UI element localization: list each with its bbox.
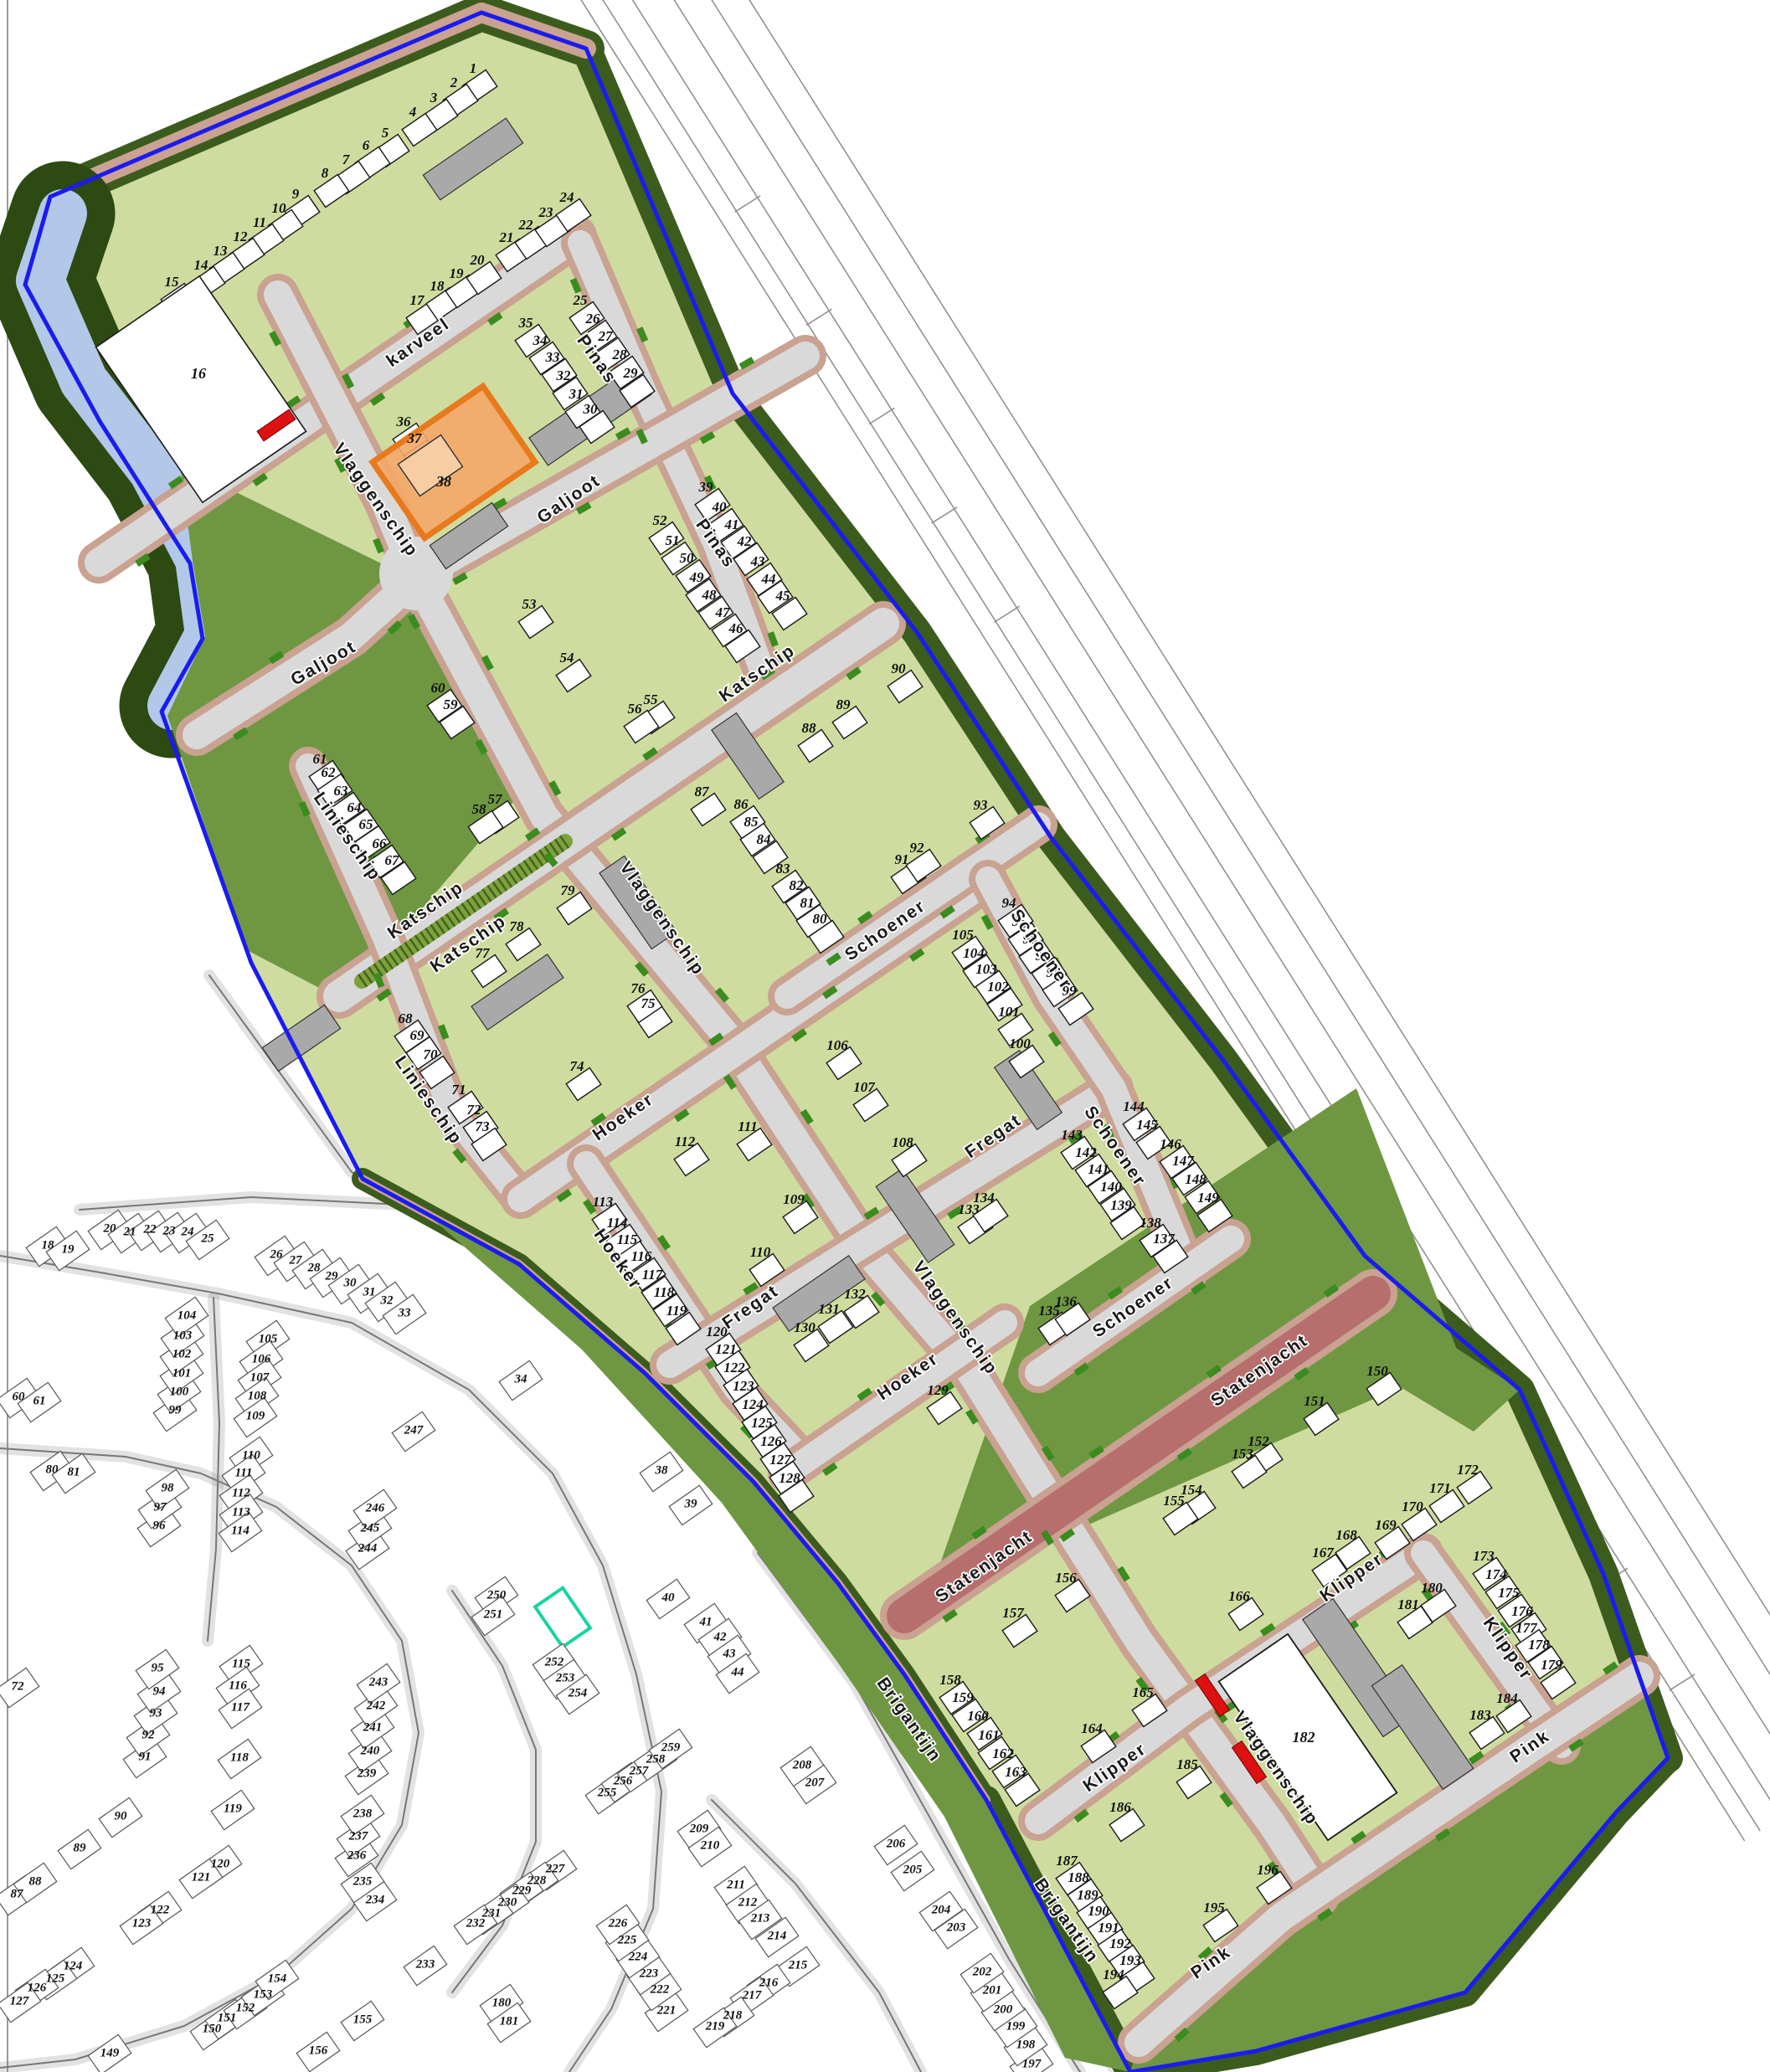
plot-label-156: 156 (309, 2044, 328, 2057)
plot-label-41: 41 (724, 517, 739, 532)
plot-label-137: 137 (1153, 1231, 1176, 1247)
plot-label-219: 219 (705, 2019, 725, 2033)
plot-label-105: 105 (259, 1332, 278, 1345)
plot-label-149: 149 (100, 2046, 120, 2059)
plot-label-91: 91 (895, 851, 909, 867)
plot-label-153: 153 (1232, 1446, 1253, 1462)
plot-label-21: 21 (499, 229, 514, 245)
plot-label-32: 32 (380, 1293, 394, 1307)
plot-label-183: 183 (1469, 1707, 1491, 1723)
plot-label-59: 59 (444, 697, 459, 712)
plot-label-200: 200 (993, 2003, 1013, 2016)
plot-label-227: 227 (545, 1862, 565, 1875)
plot-label-48: 48 (702, 587, 718, 603)
plot-label-29: 29 (623, 365, 639, 381)
plot-label-205: 205 (903, 1863, 923, 1876)
plot-label-101: 101 (172, 1366, 192, 1380)
plot-label-81: 81 (800, 895, 815, 911)
plot-label-46: 46 (728, 620, 744, 636)
plot-label-111: 111 (738, 1118, 758, 1134)
plot-label-57: 57 (488, 791, 504, 807)
plot-label-216: 216 (759, 1976, 779, 1989)
plot-label-206: 206 (886, 1837, 906, 1850)
plot-label-148: 148 (1185, 1171, 1207, 1187)
plot-label-31: 31 (569, 386, 584, 402)
plot-label-70: 70 (424, 1046, 439, 1062)
plot-label-86: 86 (734, 796, 749, 812)
plot-label-87: 87 (695, 784, 711, 799)
plot-label-22: 22 (518, 217, 534, 233)
plot-label-117: 117 (231, 1700, 250, 1714)
plot-label-116: 116 (229, 1679, 247, 1692)
plot-label-134: 134 (973, 1190, 995, 1206)
plot-label-108: 108 (892, 1134, 913, 1150)
plot-label-125: 125 (46, 1972, 65, 1985)
plot-label-108: 108 (248, 1389, 267, 1402)
plot-label-169: 169 (1375, 1517, 1397, 1533)
plot-label-112: 112 (232, 1486, 250, 1499)
plot-label-39: 39 (698, 479, 714, 495)
plot-label-72: 72 (12, 1679, 25, 1693)
plot-label-49: 49 (689, 569, 705, 585)
plot-label-61: 61 (33, 1394, 46, 1407)
plot-label-47: 47 (715, 604, 732, 620)
plot-label-124: 124 (64, 1959, 83, 1972)
plot-label-68: 68 (399, 1010, 414, 1026)
plot-label-197: 197 (1022, 2057, 1042, 2070)
plot-label-173: 173 (1473, 1548, 1495, 1564)
plot-label-65: 65 (359, 816, 374, 832)
plot-label-179: 179 (1541, 1657, 1562, 1673)
plot-label-60: 60 (431, 680, 446, 696)
plot-label-161: 161 (978, 1727, 1000, 1743)
plot-label-129: 129 (927, 1382, 949, 1398)
plot-label-19: 19 (62, 1242, 75, 1256)
plot-label-106: 106 (252, 1352, 271, 1365)
plot-label-136: 136 (1055, 1293, 1077, 1309)
plot-label-66: 66 (373, 835, 388, 851)
plot-label-244: 244 (358, 1541, 378, 1555)
plot-label-33: 33 (545, 349, 561, 365)
plot-label-214: 214 (767, 1929, 787, 1942)
plot-label-2: 2 (450, 75, 458, 90)
plot-label-115: 115 (232, 1657, 250, 1670)
plot-label-52: 52 (653, 512, 668, 528)
plot-label-102: 102 (172, 1347, 192, 1360)
plot-label-43: 43 (723, 1647, 737, 1660)
plot-label-76: 76 (631, 980, 646, 996)
plot-label-223: 223 (639, 1967, 659, 1980)
plot-label-181: 181 (500, 2014, 519, 2028)
plot-label-121: 121 (715, 1341, 737, 1357)
plot-label-238: 238 (352, 1807, 373, 1820)
plot-label-194: 194 (1103, 1967, 1124, 1982)
plot-label-211: 211 (726, 1878, 745, 1891)
plot-label-6: 6 (363, 137, 370, 153)
plot-label-150: 150 (1366, 1363, 1388, 1379)
plot-label-14: 14 (194, 257, 208, 273)
plot-label-144: 144 (1123, 1098, 1145, 1114)
plot-label-224: 224 (628, 1950, 648, 1963)
plot-label-118: 118 (654, 1284, 675, 1300)
plot-label-208: 208 (792, 1758, 812, 1771)
plot-label-243: 243 (368, 1675, 388, 1689)
plot-label-110: 110 (750, 1244, 771, 1260)
plot-label-78: 78 (510, 918, 525, 934)
plot-label-21: 21 (123, 1225, 136, 1238)
plot-label-160: 160 (967, 1708, 989, 1724)
plot-label-154: 154 (268, 1972, 287, 1985)
plot-label-8: 8 (322, 165, 329, 181)
plot-label-116: 116 (631, 1248, 652, 1264)
site-plan-page: 1234567891011121314151718192021222324252… (0, 0, 1770, 2072)
plot-label-100: 100 (170, 1385, 189, 1398)
plot-label-90: 90 (115, 1809, 128, 1823)
plot-label-80: 80 (46, 1463, 59, 1476)
plot-label-40: 40 (712, 499, 728, 515)
plot-label-38: 38 (655, 1463, 669, 1477)
plot-label-12: 12 (234, 229, 249, 244)
plot-label-123: 123 (132, 1916, 152, 1930)
plot-label-191: 191 (1098, 1920, 1119, 1936)
plot-label-20: 20 (103, 1221, 117, 1235)
plot-label-16: 16 (191, 365, 206, 382)
plot-label-24: 24 (559, 189, 574, 205)
plot-label-250: 250 (486, 1588, 507, 1602)
plot-label-233: 233 (415, 1957, 435, 1971)
plot-label-259: 259 (661, 1740, 681, 1754)
plot-label-114: 114 (231, 1524, 250, 1537)
plot-label-75: 75 (641, 995, 656, 1011)
plot-label-184: 184 (1496, 1690, 1518, 1706)
plot-label-131: 131 (818, 1301, 840, 1317)
plot-label-158: 158 (939, 1672, 961, 1688)
plot-label-198: 198 (1016, 2038, 1036, 2051)
plot-label-10: 10 (272, 200, 287, 216)
plot-label-218: 218 (723, 2008, 743, 2022)
plot-label-109: 109 (246, 1409, 265, 1422)
plot-label-33: 33 (398, 1306, 412, 1319)
plot-label-27: 27 (598, 328, 615, 344)
plot-label-180: 180 (1421, 1580, 1443, 1596)
plot-label-104: 104 (963, 945, 985, 961)
plot-label-29: 29 (325, 1269, 339, 1283)
plot-label-103: 103 (975, 961, 997, 977)
plot-label-167: 167 (1312, 1545, 1335, 1560)
plot-label-99: 99 (169, 1403, 183, 1416)
plot-label-155: 155 (1163, 1493, 1185, 1509)
plot-label-91: 91 (139, 1750, 152, 1763)
plot-label-237: 237 (348, 1829, 368, 1843)
plot-label-93: 93 (150, 1706, 163, 1720)
plot-label-56: 56 (628, 701, 643, 717)
plot-label-96: 96 (153, 1519, 167, 1532)
plot-label-38: 38 (435, 473, 451, 490)
plot-label-111: 111 (235, 1466, 253, 1479)
plot-label-113: 113 (232, 1505, 250, 1519)
plot-label-83: 83 (776, 861, 791, 877)
plot-label-13: 13 (214, 243, 229, 259)
plot-label-252: 252 (544, 1655, 564, 1668)
plot-label-31: 31 (363, 1285, 376, 1298)
plot-label-93: 93 (974, 797, 989, 813)
plot-label-32: 32 (556, 368, 572, 383)
plot-label-5: 5 (382, 125, 389, 141)
plot-label-235: 235 (352, 1874, 373, 1888)
plot-label-130: 130 (794, 1319, 816, 1335)
plot-label-127: 127 (10, 1994, 29, 2008)
plot-label-97: 97 (154, 1500, 167, 1514)
plot-label-88: 88 (29, 1874, 43, 1888)
plot-label-122: 122 (723, 1360, 745, 1375)
plot-label-203: 203 (946, 1920, 966, 1934)
plot-label-41: 41 (699, 1615, 713, 1628)
plot-label-62: 62 (322, 764, 337, 780)
plot-label-171: 171 (1429, 1480, 1451, 1496)
plot-label-187: 187 (1056, 1853, 1078, 1869)
plot-label-110: 110 (242, 1448, 260, 1462)
plot-label-30: 30 (343, 1276, 358, 1289)
plot-label-50: 50 (680, 550, 695, 566)
plot-label-126: 126 (760, 1433, 782, 1449)
plot-label-19: 19 (450, 265, 465, 281)
plot-label-94: 94 (1002, 895, 1016, 911)
plot-label-151: 151 (1304, 1393, 1325, 1409)
plot-label-143: 143 (1061, 1127, 1083, 1143)
plot-label-95: 95 (152, 1661, 165, 1674)
plot-label-25: 25 (573, 292, 589, 308)
plot-label-240: 240 (360, 1744, 380, 1757)
plot-label-255: 255 (597, 1786, 617, 1799)
plot-label-28: 28 (307, 1261, 322, 1274)
plot-label-196: 196 (1257, 1862, 1279, 1878)
plot-label-190: 190 (1088, 1903, 1109, 1919)
plot-label-210: 210 (700, 1838, 720, 1852)
plot-label-172: 172 (1457, 1462, 1479, 1478)
plot-label-201: 201 (982, 1983, 1002, 1997)
plot-label-174: 174 (1485, 1566, 1507, 1582)
plot-label-164: 164 (1081, 1720, 1103, 1736)
plot-label-209: 209 (689, 1822, 709, 1835)
plot-label-146: 146 (1160, 1136, 1181, 1152)
plot-label-128: 128 (779, 1470, 800, 1486)
plot-label-82: 82 (790, 877, 805, 893)
plot-label-30: 30 (583, 401, 599, 417)
plot-label-102: 102 (987, 979, 1009, 995)
plot-label-106: 106 (826, 1037, 848, 1053)
plot-label-165: 165 (1132, 1684, 1154, 1700)
plot-label-42: 42 (713, 1630, 728, 1643)
plot-label-159: 159 (952, 1689, 974, 1705)
plot-label-127: 127 (769, 1452, 792, 1468)
plot-label-87: 87 (11, 1887, 24, 1900)
plot-label-122: 122 (151, 1903, 170, 1916)
plot-label-39: 39 (684, 1497, 698, 1510)
plot-label-25: 25 (201, 1231, 215, 1245)
plot-label-54: 54 (560, 650, 574, 666)
plot-label-241: 241 (363, 1720, 383, 1734)
plot-label-168: 168 (1335, 1527, 1357, 1543)
plot-label-88: 88 (802, 720, 817, 736)
plot-label-247: 247 (404, 1423, 424, 1437)
plot-label-212: 212 (738, 1895, 758, 1909)
plot-label-60: 60 (13, 1390, 26, 1403)
plot-label-176: 176 (1511, 1603, 1533, 1619)
plot-label-156: 156 (1055, 1570, 1077, 1586)
plot-label-84: 84 (757, 831, 771, 847)
plot-label-64: 64 (347, 799, 362, 815)
plot-label-189: 189 (1077, 1887, 1099, 1903)
plot-label-9: 9 (292, 186, 300, 202)
plot-label-204: 204 (931, 1903, 951, 1916)
plot-label-120: 120 (211, 1857, 230, 1870)
plot-label-20: 20 (470, 252, 486, 268)
plot-label-92: 92 (142, 1728, 156, 1741)
plot-label-22: 22 (143, 1222, 157, 1236)
plot-label-117: 117 (642, 1267, 664, 1283)
plot-label-104: 104 (178, 1308, 197, 1322)
plot-label-72: 72 (467, 1102, 482, 1118)
plot-label-103: 103 (173, 1329, 193, 1342)
plot-label-199: 199 (1006, 2019, 1026, 2033)
plot-label-125: 125 (751, 1415, 773, 1431)
plot-label-232: 232 (466, 1916, 486, 1930)
plot-label-253: 253 (555, 1671, 575, 1684)
plot-label-17: 17 (410, 292, 426, 308)
plot-label-126: 126 (28, 1981, 47, 1994)
plot-label-124: 124 (742, 1396, 764, 1412)
plot-label-234: 234 (365, 1893, 385, 1906)
plot-label-257: 257 (629, 1764, 649, 1777)
plot-label-28: 28 (612, 347, 628, 362)
plot-label-142: 142 (1075, 1144, 1097, 1160)
plot-label-157: 157 (1002, 1605, 1025, 1621)
plot-label-81: 81 (68, 1465, 80, 1478)
plot-label-132: 132 (844, 1286, 866, 1302)
plot-label-138: 138 (1140, 1215, 1161, 1231)
plot-label-23: 23 (538, 204, 554, 220)
plot-label-107: 107 (853, 1079, 876, 1095)
plot-label-85: 85 (744, 814, 759, 830)
plot-label-226: 226 (608, 1916, 628, 1930)
plot-label-90: 90 (892, 661, 907, 676)
plot-label-239: 239 (357, 1766, 377, 1780)
plot-label-45: 45 (775, 588, 791, 604)
plot-label-185: 185 (1176, 1756, 1198, 1772)
plot-label-258: 258 (646, 1752, 666, 1766)
plot-label-24: 24 (181, 1225, 195, 1238)
plot-label-140: 140 (1100, 1179, 1122, 1195)
plot-label-163: 163 (1005, 1764, 1026, 1780)
plot-label-242: 242 (366, 1699, 386, 1712)
plot-label-35: 35 (518, 315, 534, 331)
plot-label-141: 141 (1088, 1161, 1109, 1177)
plot-label-178: 178 (1528, 1637, 1550, 1653)
plot-label-215: 215 (788, 1958, 808, 1972)
plot-label-109: 109 (783, 1191, 805, 1207)
plot-label-23: 23 (162, 1224, 177, 1237)
plot-label-119: 119 (666, 1303, 687, 1319)
site-plan-map: 1234567891011121314151718192021222324252… (0, 0, 1770, 2072)
plot-label-166: 166 (1228, 1588, 1250, 1604)
plot-label-251: 251 (483, 1607, 503, 1621)
plot-label-34: 34 (533, 332, 548, 348)
plot-label-254: 254 (568, 1686, 588, 1699)
plot-label-114: 114 (607, 1215, 628, 1231)
plot-label-139: 139 (1110, 1197, 1132, 1213)
plot-label-107: 107 (250, 1370, 270, 1384)
plot-label-225: 225 (617, 1933, 637, 1946)
plot-label-236: 236 (347, 1848, 367, 1862)
plot-label-170: 170 (1402, 1499, 1423, 1514)
plot-label-89: 89 (74, 1841, 87, 1854)
plot-label-113: 113 (593, 1194, 614, 1210)
plot-label-186: 186 (1109, 1799, 1131, 1815)
plot-label-69: 69 (410, 1027, 425, 1043)
plot-label-155: 155 (353, 2013, 373, 2026)
plot-label-245: 245 (360, 1521, 380, 1535)
plot-label-55: 55 (644, 692, 659, 707)
plot-label-3: 3 (430, 90, 438, 105)
plot-label-37: 37 (407, 430, 424, 446)
plot-label-44: 44 (761, 571, 776, 587)
plot-label-147: 147 (1172, 1153, 1195, 1169)
plot-label-80: 80 (813, 911, 828, 927)
plot-label-89: 89 (836, 697, 852, 712)
plot-label-123: 123 (733, 1378, 754, 1394)
plot-label-152: 152 (236, 2001, 255, 2014)
plot-label-181: 181 (1397, 1596, 1419, 1612)
plot-label-101: 101 (998, 1004, 1020, 1020)
plot-label-182: 182 (1293, 1729, 1315, 1746)
plot-label-92: 92 (910, 840, 925, 856)
plot-label-98: 98 (162, 1481, 175, 1494)
plot-label-118: 118 (230, 1751, 249, 1764)
plot-label-71: 71 (452, 1082, 466, 1098)
plot-label-177: 177 (1515, 1620, 1538, 1636)
plot-label-58: 58 (472, 801, 487, 817)
plot-label-222: 222 (650, 1982, 670, 1996)
plot-label-73: 73 (476, 1118, 491, 1134)
plot-label-149: 149 (1197, 1190, 1219, 1206)
plot-label-162: 162 (992, 1746, 1014, 1761)
plot-label-44: 44 (731, 1665, 745, 1679)
plot-label-40: 40 (661, 1591, 676, 1604)
plot-label-74: 74 (570, 1058, 584, 1074)
plot-label-26: 26 (270, 1247, 284, 1261)
plot-label-221: 221 (656, 2003, 677, 2017)
plot-label-151: 151 (218, 2011, 237, 2024)
plot-label-53: 53 (522, 596, 538, 612)
plot-label-180: 180 (492, 1996, 512, 2009)
plot-label-207: 207 (805, 1776, 825, 1789)
plot-label-15: 15 (165, 274, 180, 290)
plot-label-213: 213 (750, 1911, 770, 1925)
plot-label-27: 27 (289, 1253, 303, 1267)
plot-label-36: 36 (396, 414, 412, 429)
plot-label-145: 145 (1136, 1117, 1158, 1133)
plot-label-42: 42 (737, 533, 753, 549)
plot-label-94: 94 (153, 1684, 167, 1698)
plot-label-79: 79 (561, 882, 576, 898)
plot-label-11: 11 (253, 214, 266, 230)
plot-label-195: 195 (1203, 1900, 1225, 1915)
plot-label-192: 192 (1109, 1936, 1131, 1951)
plot-label-217: 217 (742, 1988, 762, 2002)
plot-label-43: 43 (750, 553, 766, 569)
plot-label-188: 188 (1068, 1869, 1089, 1885)
plot-label-63: 63 (334, 783, 349, 799)
